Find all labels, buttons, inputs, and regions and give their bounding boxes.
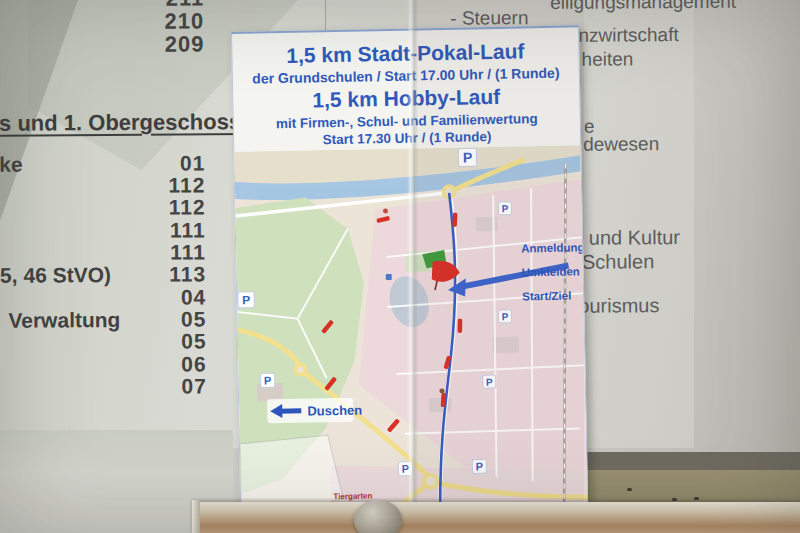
case-bottom-rail: [192, 502, 800, 533]
directory-section-heading: s und 1. Obergeschoss): [0, 109, 248, 137]
directory-row: ke 01: [0, 151, 205, 174]
directory-row: 05: [0, 329, 206, 352]
rail-end-cap: [192, 500, 200, 533]
parking-icon: P: [264, 374, 272, 386]
directory-row: 04: [0, 285, 206, 308]
directory-row: 112: [0, 173, 205, 196]
row-number: 111: [170, 240, 206, 264]
door-knob: [354, 500, 402, 533]
row-number: 05: [181, 307, 207, 331]
photo-of-display-case: 211 210 209 s und 1. Obergeschoss) ke 01…: [0, 0, 800, 533]
text-fragment: dewesen: [583, 133, 659, 156]
text-fragment: und Kultur: [589, 226, 680, 250]
row-number: 06: [181, 352, 207, 376]
directory-row: 5, 46 StVO) 113: [0, 262, 206, 285]
row-number: 111: [170, 218, 206, 242]
glass-tint: [416, 0, 584, 512]
parking-icon: P: [242, 293, 250, 307]
directory-row: 112: [0, 195, 206, 218]
duschen-text: Duschen: [307, 403, 362, 419]
row-label: 5, 46 StVO): [0, 263, 111, 288]
row-number: 112: [169, 195, 206, 219]
roundabout: [295, 365, 305, 375]
poi-marker: [386, 274, 392, 280]
row-number: 05: [181, 329, 207, 353]
glass-pane-edge: [407, 0, 418, 506]
room-number: 210: [116, 9, 204, 33]
duschen-label: Duschen: [267, 398, 362, 424]
row-number: 01: [180, 151, 206, 175]
row-number: 07: [181, 374, 207, 398]
directory-row: Verwaltung 05: [0, 307, 206, 330]
directory-row: 07: [1, 374, 207, 397]
row-number: 113: [169, 262, 206, 286]
directory-row: 111: [0, 240, 206, 263]
row-number: 04: [181, 285, 207, 309]
text-fragment: heiten: [581, 48, 633, 70]
directory-row: 111: [0, 218, 206, 241]
row-label: Verwaltung: [8, 308, 120, 333]
directory-row: 06: [1, 352, 207, 375]
room-number: 209: [116, 32, 204, 56]
text-fragment: ourismus: [578, 294, 659, 318]
row-number: 112: [168, 173, 205, 197]
row-label: ke: [0, 153, 23, 177]
text-fragment: Schulen: [582, 250, 654, 274]
room-number-list: 211 210 209: [116, 0, 204, 56]
